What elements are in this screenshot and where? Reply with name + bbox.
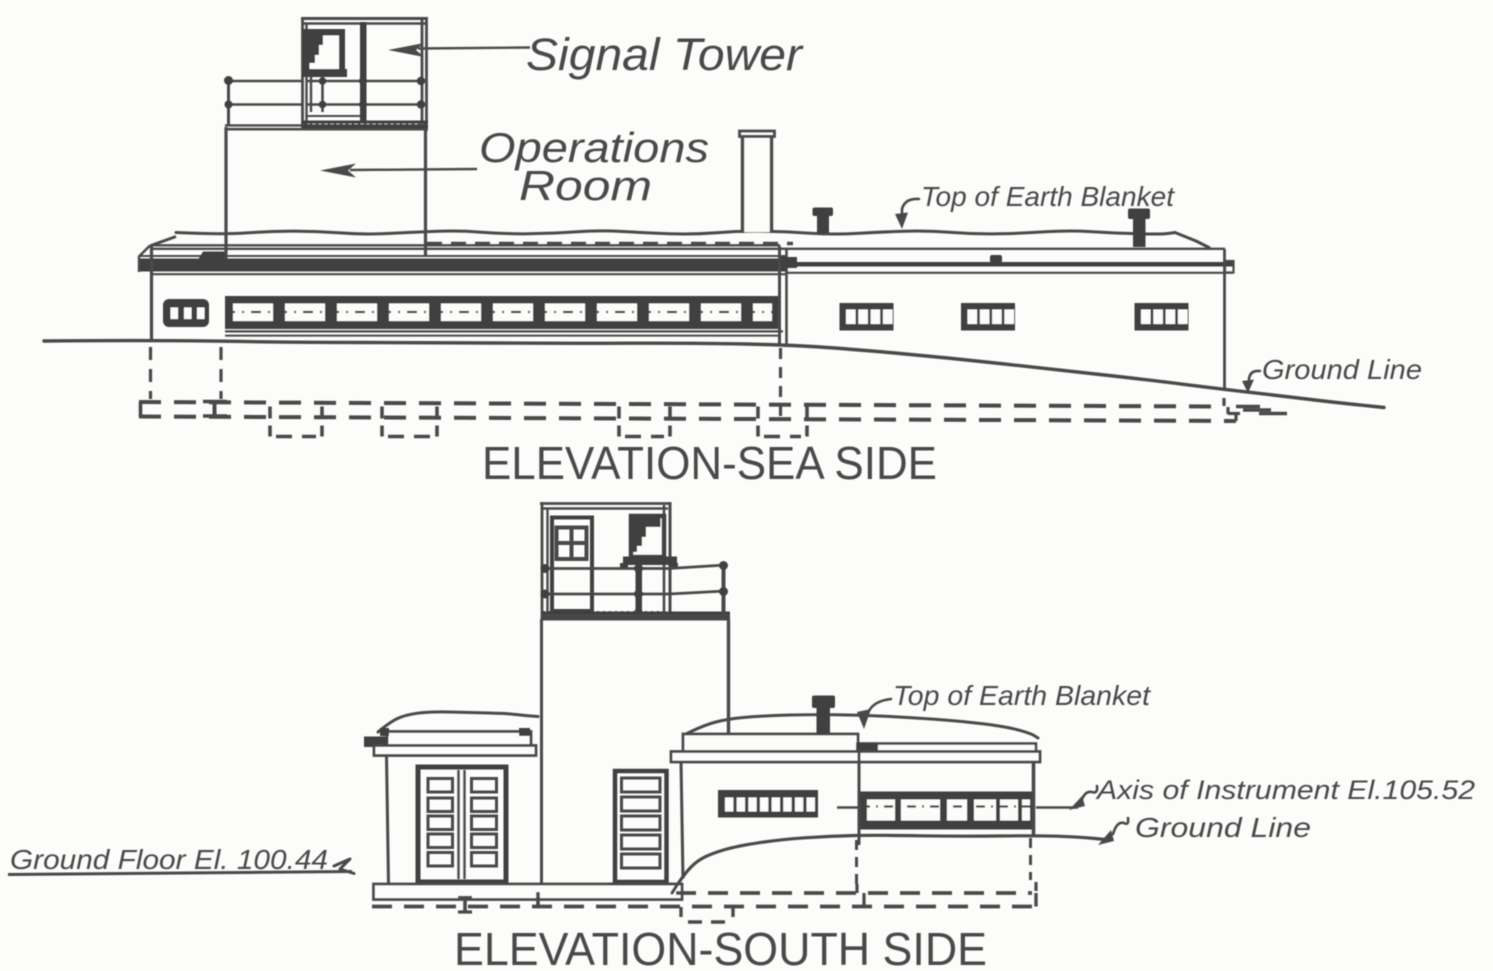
svg-text:Ground Floor El. 100.44: Ground Floor El. 100.44: [10, 844, 328, 875]
svg-text:Ground Line: Ground Line: [1135, 812, 1311, 843]
svg-text:Ground Line: Ground Line: [1262, 354, 1422, 385]
svg-text:ELEVATION-SEA SIDE: ELEVATION-SEA SIDE: [482, 437, 937, 489]
svg-text:Room: Room: [519, 162, 652, 209]
svg-text:Top of Earth Blanket: Top of Earth Blanket: [921, 181, 1175, 212]
svg-text:Axis of Instrument El.105.52: Axis of Instrument El.105.52: [1095, 775, 1475, 805]
svg-text:Top of Earth Blanket: Top of Earth Blanket: [893, 680, 1151, 711]
svg-text:Signal Tower: Signal Tower: [526, 29, 804, 80]
svg-text:ELEVATION-SOUTH SIDE: ELEVATION-SOUTH SIDE: [454, 923, 987, 971]
